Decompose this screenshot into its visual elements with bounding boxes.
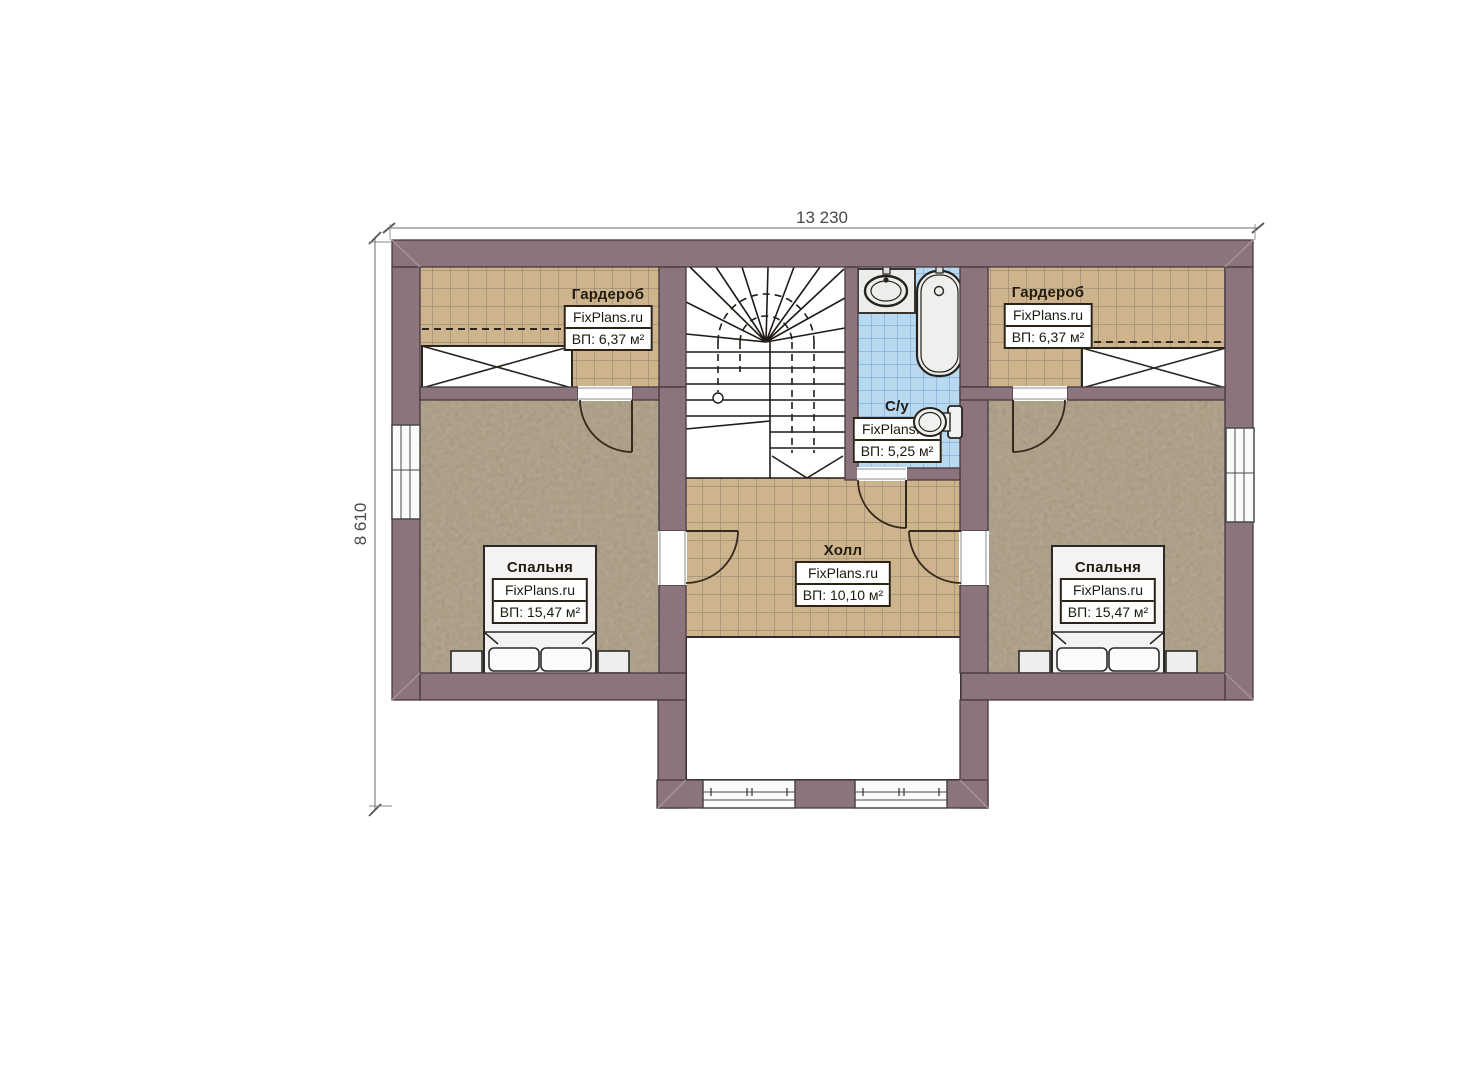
room-label-wardrobe-right: Гардероб FixPlans.ru ВП: 6,37 м² [1004,284,1093,349]
room-label-wardrobe-left: Гардероб FixPlans.ru ВП: 6,37 м² [564,286,653,351]
window-bottom-left [703,780,795,808]
room-area: ВП: 6,37 м² [1006,325,1091,347]
nightstand [451,651,482,673]
floor-plan-drawing [0,0,1473,1080]
room-area: ВП: 6,37 м² [566,327,651,349]
room-label-hall: Холл FixPlans.ru ВП: 10,10 м² [795,542,891,607]
room-name: Спальня [1075,559,1141,576]
window-right-wall [1226,428,1254,522]
dimension-height: 8 610 [351,503,371,546]
room-area: ВП: 15,47 м² [494,600,586,622]
void-area [686,637,961,780]
floors [419,267,1226,780]
stair-floor [686,267,845,478]
window-left-wall [392,425,420,519]
room-info-box: FixPlans.ru ВП: 15,47 м² [492,578,588,624]
room-name: Гардероб [572,286,645,303]
brand-watermark: FixPlans.ru [1062,580,1154,600]
brand-watermark: FixPlans.ru [1006,305,1091,325]
pillow [1057,648,1107,671]
room-name: Холл [824,542,862,559]
room-info-box: FixPlans.ru ВП: 6,37 м² [1004,303,1093,349]
room-label-bedroom-left: Спальня FixPlans.ru ВП: 15,47 м² [492,559,588,624]
closet-right [1082,342,1226,388]
window-bottom-right [855,780,947,808]
pillow [541,648,591,671]
toilet-icon [900,400,970,450]
room-area: ВП: 10,10 м² [797,583,889,605]
room-info-box: FixPlans.ru ВП: 6,37 м² [564,305,653,351]
bathtub [917,265,962,376]
nightstand [1019,651,1050,673]
pillow [1109,648,1159,671]
dimension-width: 13 230 [796,208,848,228]
room-area: ВП: 15,47 м² [1062,600,1154,622]
nightstand [598,651,629,673]
pillow [489,648,539,671]
floor-plan: Гардероб FixPlans.ru ВП: 6,37 м² Гардеро… [0,0,1473,1080]
brand-watermark: FixPlans.ru [494,580,586,600]
room-name: Гардероб [1012,284,1085,301]
brand-watermark: FixPlans.ru [566,307,651,327]
room-name: Спальня [507,559,573,576]
room-info-box: FixPlans.ru ВП: 10,10 м² [795,561,891,607]
vanity-sink [858,265,915,313]
brand-watermark: FixPlans.ru [797,563,889,583]
room-info-box: FixPlans.ru ВП: 15,47 м² [1060,578,1156,624]
nightstand [1166,651,1197,673]
room-label-bedroom-right: Спальня FixPlans.ru ВП: 15,47 м² [1060,559,1156,624]
